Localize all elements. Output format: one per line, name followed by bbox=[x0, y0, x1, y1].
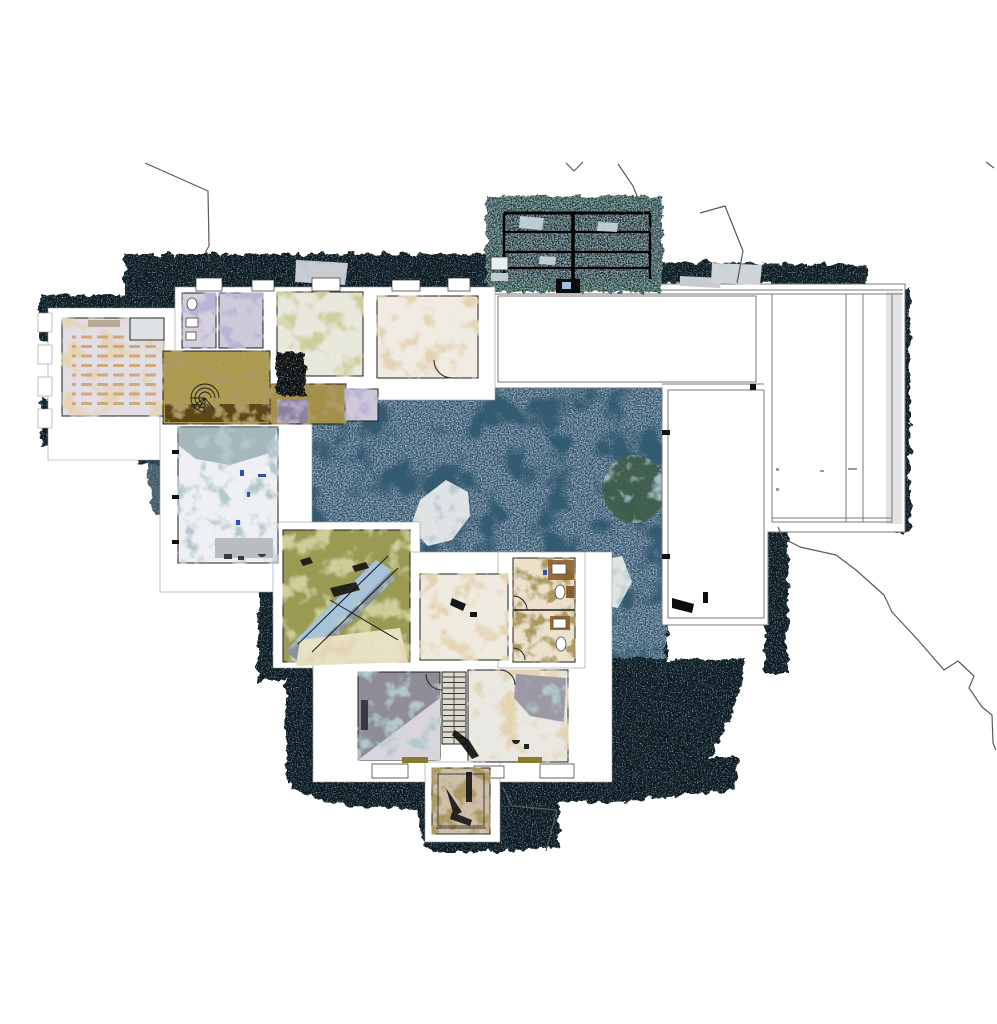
gray-room-radiator bbox=[361, 700, 368, 730]
bush-icon bbox=[603, 455, 665, 523]
chapel-pews bbox=[72, 330, 156, 408]
mid-room-a bbox=[420, 574, 508, 660]
hall-dark-strip bbox=[165, 404, 270, 422]
vestibule bbox=[345, 389, 378, 421]
cream-room bbox=[377, 296, 478, 378]
chapel-entry-cell bbox=[130, 318, 164, 340]
floorplan-canvas bbox=[0, 0, 997, 1024]
chapel-room bbox=[62, 318, 180, 416]
glasshouse-door-glass bbox=[562, 282, 571, 289]
left-wing-room bbox=[172, 427, 278, 563]
bathroom-fixtures bbox=[186, 298, 198, 340]
hall-bw-patch bbox=[277, 352, 305, 396]
hall-purple-patch bbox=[277, 399, 307, 423]
entrance-porch bbox=[432, 768, 490, 834]
purple-room bbox=[219, 293, 263, 348]
roof-fringe-gray bbox=[886, 292, 902, 524]
glasshouse-side-bits bbox=[491, 257, 508, 281]
porch-floor bbox=[432, 768, 490, 834]
northband-gray-patch bbox=[711, 263, 762, 285]
chapel-altar-mark bbox=[88, 320, 120, 327]
conservatory-garden-room bbox=[283, 530, 410, 666]
mid-rooms bbox=[420, 558, 575, 662]
